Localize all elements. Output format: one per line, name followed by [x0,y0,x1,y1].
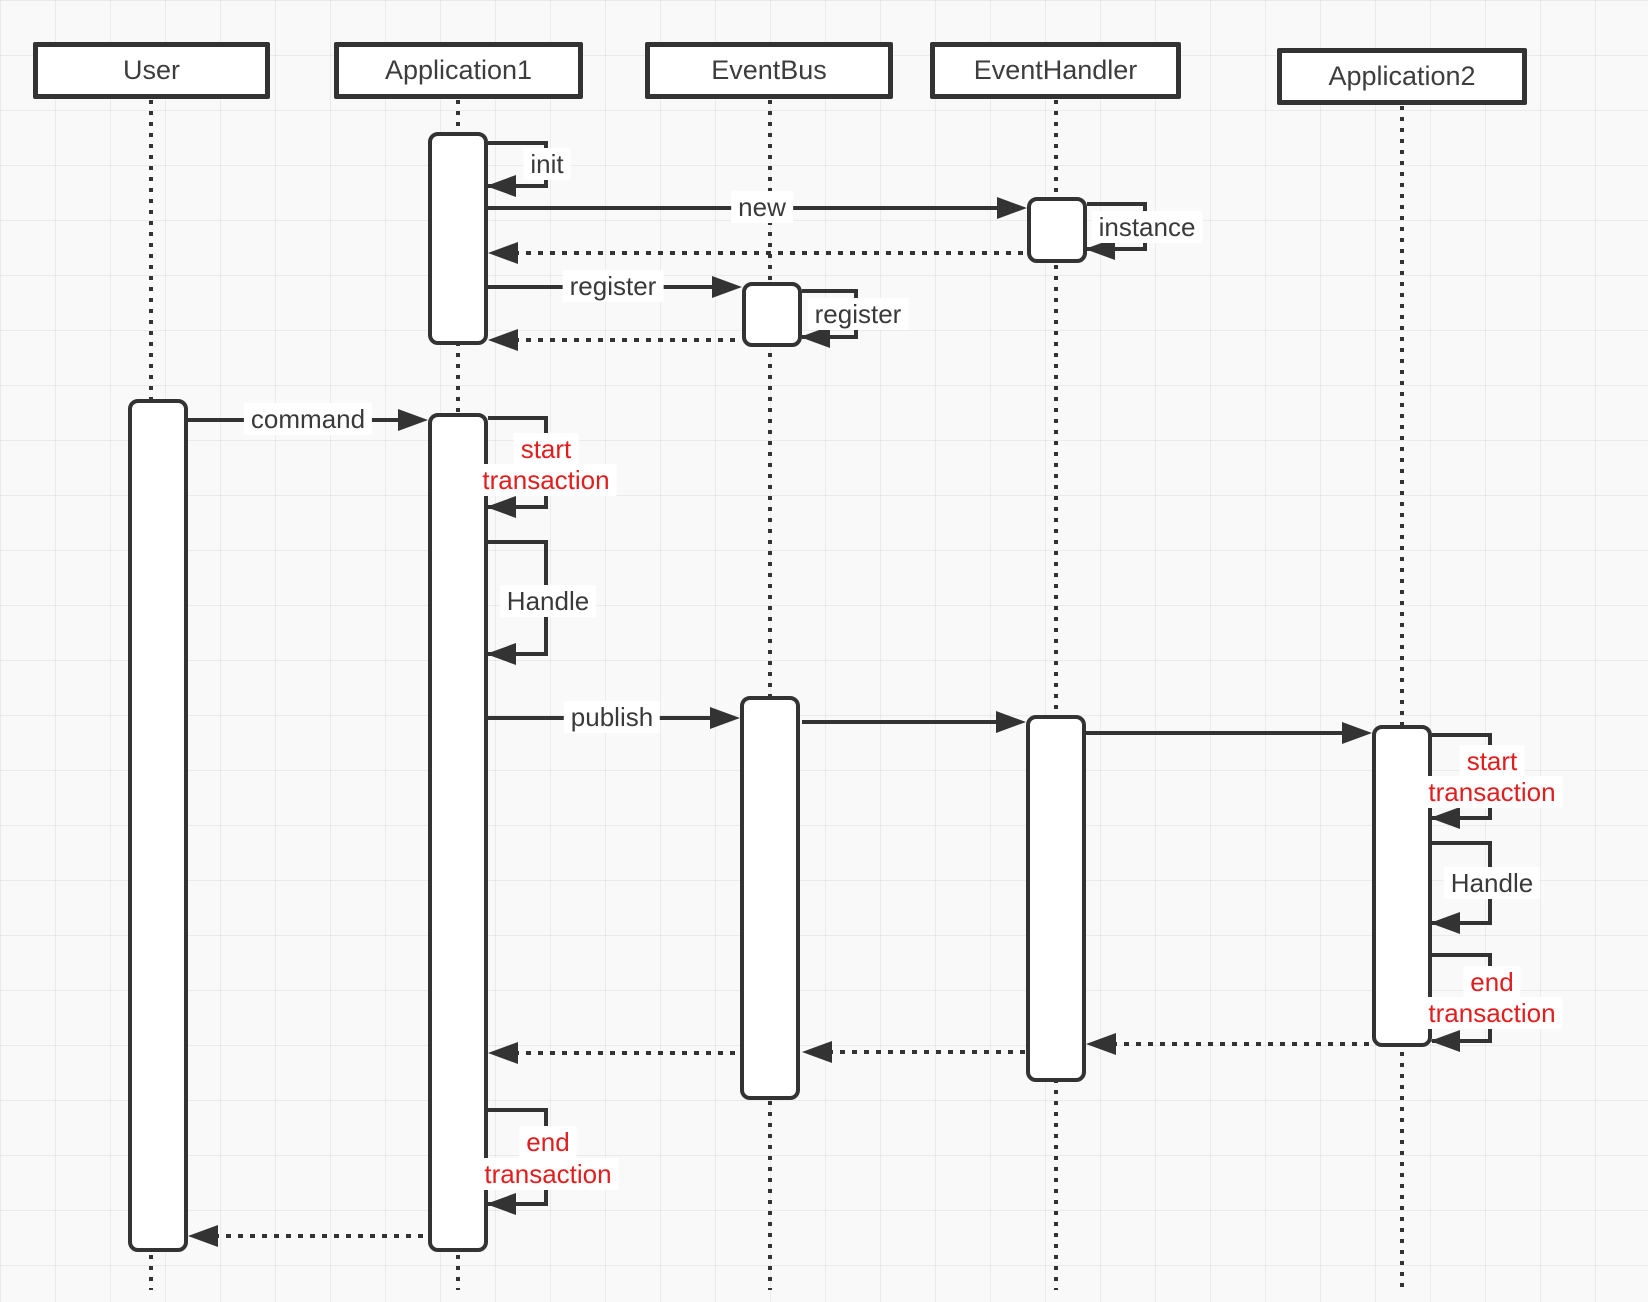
arrowhead-return-application2 [1086,1033,1116,1055]
activation-application1-main [428,413,488,1252]
arrowhead-end-transaction-app1 [486,1193,516,1215]
message-label-transaction-app1: transaction [475,464,616,496]
participant-user: User [33,42,270,99]
message-label-handle-app2: Handle [1444,867,1540,899]
message-label-publish: publish [564,701,660,733]
return-eventbus-line [514,1051,740,1055]
message-label-end-app1: end [519,1126,576,1158]
message-label-transaction-end-app1: transaction [477,1158,618,1190]
activation-user-main [128,399,188,1252]
message-label-register-self: register [808,298,909,330]
arrowhead-start-transaction-app1 [486,496,516,518]
message-label-command: command [244,403,372,435]
message-eventhandler-to-application2-line [1086,731,1346,735]
activation-application1-init [428,132,488,345]
message-label-end-app2: end [1463,966,1520,998]
message-label-register: register [563,270,664,302]
return-application2-line [1112,1042,1372,1046]
message-label-transaction-end-app2: transaction [1421,997,1562,1029]
arrowhead-new [997,197,1027,219]
participant-eventhandler: EventHandler [930,42,1181,99]
participant-user-label: User [123,55,180,86]
message-label-handle-app1: Handle [500,585,596,617]
message-label-transaction-app2: transaction [1421,776,1562,808]
message-eventbus-to-eventhandler-line [802,720,1000,724]
message-label-start-app2: start [1460,745,1525,777]
arrowhead-return-eventbus [488,1042,518,1064]
participant-application1-label: Application1 [385,55,532,86]
arrowhead-handle-app1 [486,643,516,665]
activation-eventbus-publish [740,696,800,1100]
message-label-new: new [731,191,793,223]
arrowhead-return-application1 [188,1225,218,1247]
activation-eventbus-register [742,282,802,347]
return-eventhandler-line [828,1050,1026,1054]
arrowhead-publish [710,707,740,729]
message-label-start-app1: start [514,433,579,465]
lifeline-application2 [1400,106,1404,1290]
participant-application2-label: Application2 [1328,61,1475,92]
lifeline-eventhandler [1054,100,1058,1290]
participant-eventbus-label: EventBus [711,55,827,86]
lifeline-eventbus [768,100,772,1290]
participant-application2: Application2 [1277,48,1527,105]
arrowhead-return-register [488,329,518,351]
activation-eventhandler-new [1027,197,1087,263]
sequence-diagram: User Application1 EventBus EventHandler … [0,0,1648,1302]
participant-eventhandler-label: EventHandler [974,55,1138,86]
arrowhead-start-transaction-app2 [1430,807,1460,829]
arrowhead-register [712,276,742,298]
arrowhead-return-eventhandler [802,1041,832,1063]
participant-application1: Application1 [334,42,583,99]
return-register-line [514,338,742,342]
participant-eventbus: EventBus [645,42,893,99]
return-new-line [514,251,1027,255]
arrowhead-handle-app2 [1430,912,1460,934]
arrowhead-end-transaction-app2 [1430,1030,1460,1052]
arrowhead-eventbus-to-eventhandler [996,711,1026,733]
message-label-instance: instance [1092,211,1203,243]
arrowhead-init-return [486,175,516,197]
return-application1-line [214,1234,428,1238]
arrowhead-eventhandler-to-application2 [1342,722,1372,744]
arrowhead-return-new [488,242,518,264]
message-label-init: init [523,148,570,180]
activation-eventhandler-publish [1026,715,1086,1082]
arrowhead-command [398,409,428,431]
